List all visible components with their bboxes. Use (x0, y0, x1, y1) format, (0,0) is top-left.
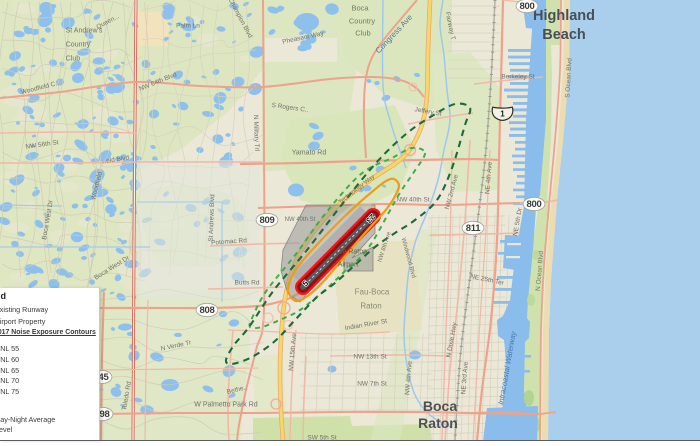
svg-text:Palm Ln: Palm Ln (176, 23, 200, 30)
svg-text:ca Raton: ca Raton (339, 249, 367, 256)
svg-text:N Military Trl: N Military Trl (252, 115, 260, 152)
svg-text:Country: Country (349, 17, 376, 26)
svg-text:Boca: Boca (423, 398, 457, 414)
svg-text:Club: Club (66, 56, 81, 63)
svg-text:Raton: Raton (360, 302, 381, 311)
svg-text:NW 40th St: NW 40th St (285, 217, 316, 223)
svg-text:800: 800 (527, 199, 542, 210)
svg-text:W Palmetto Park Rd: W Palmetto Park Rd (194, 402, 258, 409)
svg-text:Highland: Highland (533, 8, 595, 24)
svg-text:Boca: Boca (351, 4, 369, 13)
svg-text:1: 1 (500, 110, 505, 119)
svg-text:Beach: Beach (542, 27, 586, 43)
svg-text:Fau-Boca: Fau-Boca (355, 288, 390, 297)
svg-text:Yamato Rd: Yamato Rd (292, 150, 327, 157)
svg-text:Butts Rd: Butts Rd (235, 280, 260, 287)
svg-text:Berkeley St: Berkeley St (501, 74, 534, 81)
svg-text:811: 811 (466, 223, 481, 234)
svg-text:Raton: Raton (418, 415, 458, 431)
svg-text:NW 40th St: NW 40th St (396, 197, 429, 204)
svg-text:808: 808 (200, 305, 215, 316)
svg-text:NW 13th St: NW 13th St (353, 354, 386, 361)
svg-text:800: 800 (520, 1, 535, 12)
svg-text:Airport: Airport (338, 262, 359, 269)
svg-text:809: 809 (260, 215, 275, 226)
svg-text:Club: Club (355, 29, 370, 38)
svg-text:Country: Country (66, 42, 91, 49)
svg-text:NW 7th St: NW 7th St (357, 381, 387, 388)
